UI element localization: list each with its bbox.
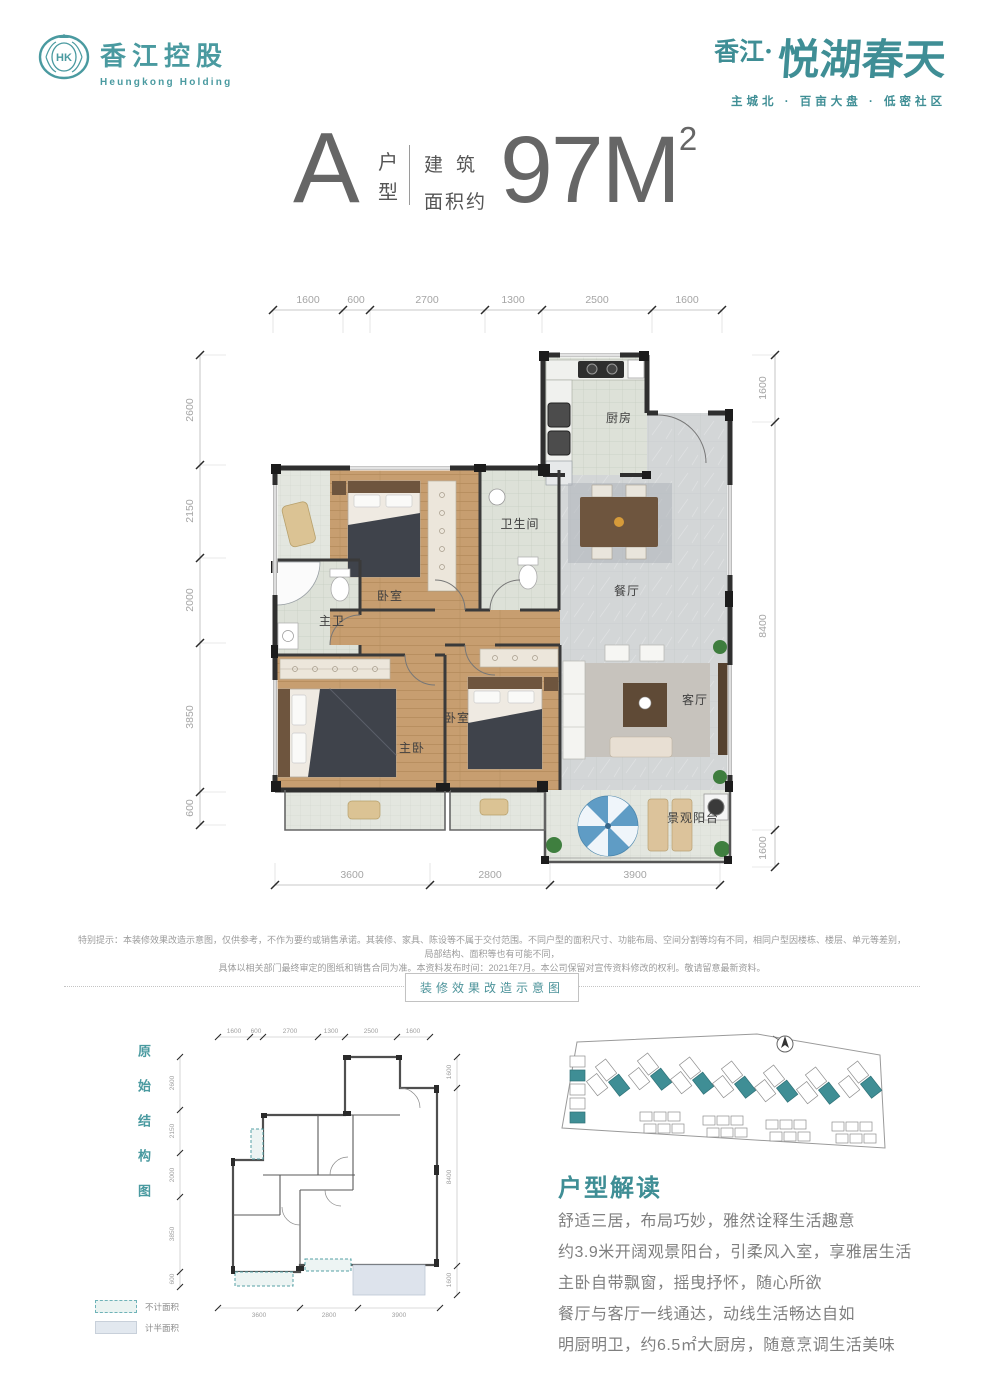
dim-label: 1300 (501, 294, 525, 306)
area-value: 97M (500, 117, 679, 223)
divider-label: 装修效果改造示意图 (405, 973, 579, 1002)
dim-label: 2700 (283, 1028, 298, 1035)
dim-label: 600 (169, 1273, 176, 1284)
dim-label: 2500 (585, 294, 609, 306)
disclaimer-line-1: 特别提示：本装修效果改造示意图，仅供参考，不作为要约或销售承诺。其装修、家具、陈… (77, 933, 907, 961)
analysis-line: 舒适三居，布局巧妙，雅然诠释生活趣意 (558, 1206, 958, 1237)
dim-label: 1600 (757, 836, 769, 860)
analysis-line: 主卧自带飘窗，摇曳抒怀，随心所欲 (558, 1268, 958, 1299)
dim-label: 8400 (757, 614, 769, 638)
dim-label: 1600 (406, 1028, 421, 1035)
unit-label-top: 户 (378, 148, 399, 178)
area-prefix-1: 建筑 (424, 150, 488, 177)
room-label-kitchen: 厨房 (606, 410, 632, 425)
unit-letter: A (293, 118, 360, 218)
dim-label: 2600 (184, 398, 196, 422)
legend-no-area-row: 不计面积 (95, 1300, 179, 1313)
dim-label: 600 (347, 294, 365, 306)
room-label-bedroom-top: 卧室 (377, 588, 403, 603)
brochure-page: HK 香江控股 Heungkong Holding 香江· 悦湖春天 主城北 ·… (0, 0, 984, 1400)
dim-label: 2000 (169, 1167, 176, 1182)
dim-label: 8400 (446, 1169, 453, 1184)
site-buildings (570, 1052, 882, 1143)
dim-label: 2800 (322, 1312, 337, 1319)
logo-emblem-text: HK (56, 52, 72, 64)
dim-label: 3850 (169, 1226, 176, 1241)
site-plan (540, 1028, 950, 1188)
logo-name-cn: 香江控股 (100, 36, 232, 73)
dim-label: 1600 (446, 1272, 453, 1287)
analysis-line: 餐厅与客厅一线通达，动线生活畅达自如 (558, 1299, 958, 1330)
room-label-balcony: 景观阳台 (667, 810, 719, 825)
plan-legend: 不计面积 计半面积 (95, 1300, 179, 1342)
dim-label: 600 (184, 799, 196, 817)
compass-icon (773, 1036, 793, 1052)
dim-label: 3600 (340, 869, 364, 881)
dim-label: 600 (251, 1028, 262, 1035)
analysis-heading: 户型解读 (558, 1168, 662, 1203)
brand-prefix: 香江· (714, 37, 773, 66)
dim-label: 2500 (364, 1028, 379, 1035)
dim-label: 3900 (392, 1312, 407, 1319)
dim-label: 1600 (227, 1028, 242, 1035)
title-divider (409, 145, 410, 205)
brand-name: 悦湖春天 (776, 26, 948, 87)
room-label-living: 客厅 (682, 692, 708, 707)
room-label-dining: 餐厅 (614, 583, 640, 598)
area-exponent: 2 (679, 120, 697, 157)
dim-label: 3600 (252, 1312, 267, 1319)
room-label-bathroom: 卫生间 (500, 517, 539, 531)
area-prefix-2: 面积约 (424, 187, 488, 214)
analysis-text: 舒适三居，布局巧妙，雅然诠释生活趣意 约3.9米开阔观景阳台，引柔风入室，享雅居… (558, 1206, 958, 1361)
dim-label: 1600 (296, 294, 320, 306)
dim-label: 2000 (184, 588, 196, 612)
legend-half-area-label: 计半面积 (145, 1322, 179, 1334)
dim-label: 2700 (415, 294, 439, 306)
brand-tagline: 主城北 · 百亩大盘 · 低密社区 (646, 93, 946, 109)
legend-no-area-label: 不计面积 (145, 1301, 179, 1313)
main-floor-plan: 1600 600 2700 1300 2500 1600 2600 2150 2… (180, 285, 820, 910)
dim-label: 1600 (446, 1064, 453, 1079)
room-label-master-bedroom: 主卧 (399, 741, 425, 755)
dim-label: 1600 (757, 376, 769, 400)
company-logo: HK (38, 30, 90, 87)
analysis-line: 约3.9米开阔观景阳台，引柔风入室，享雅居生活 (558, 1237, 958, 1268)
dim-label: 1600 (675, 294, 699, 306)
original-structure-plan: 1600 600 2700 1300 2500 1600 2600 2150 2… (100, 1025, 495, 1325)
dim-label: 2600 (169, 1075, 176, 1090)
logo-emblem-icon: HK (38, 30, 90, 82)
dim-label: 2800 (478, 869, 502, 881)
legend-no-area-swatch (95, 1300, 137, 1313)
small-plan-body (231, 1055, 439, 1295)
dim-label: 3900 (623, 869, 647, 881)
dim-label: 1300 (324, 1028, 339, 1035)
room-label-master-bath: 主卫 (319, 614, 345, 628)
legend-half-area-row: 计半面积 (95, 1321, 179, 1334)
disclaimer: 特别提示：本装修效果改造示意图，仅供参考，不作为要约或销售承诺。其装修、家具、陈… (77, 933, 907, 975)
analysis-line: 明厨明卫，约6.5㎡大厨房，随意烹调生活美味 (558, 1330, 958, 1361)
dim-label: 2150 (169, 1123, 176, 1138)
logo-name-en: Heungkong Holding (100, 77, 232, 88)
dim-label: 3850 (184, 705, 196, 729)
room-label-bedroom-mid: 卧室 (444, 710, 470, 725)
project-brand: 香江· 悦湖春天 主城北 · 百亩大盘 · 低密社区 (646, 26, 946, 109)
unit-label-bottom: 型 (378, 178, 399, 208)
legend-half-area-swatch (95, 1321, 137, 1334)
dim-label: 2150 (184, 499, 196, 523)
